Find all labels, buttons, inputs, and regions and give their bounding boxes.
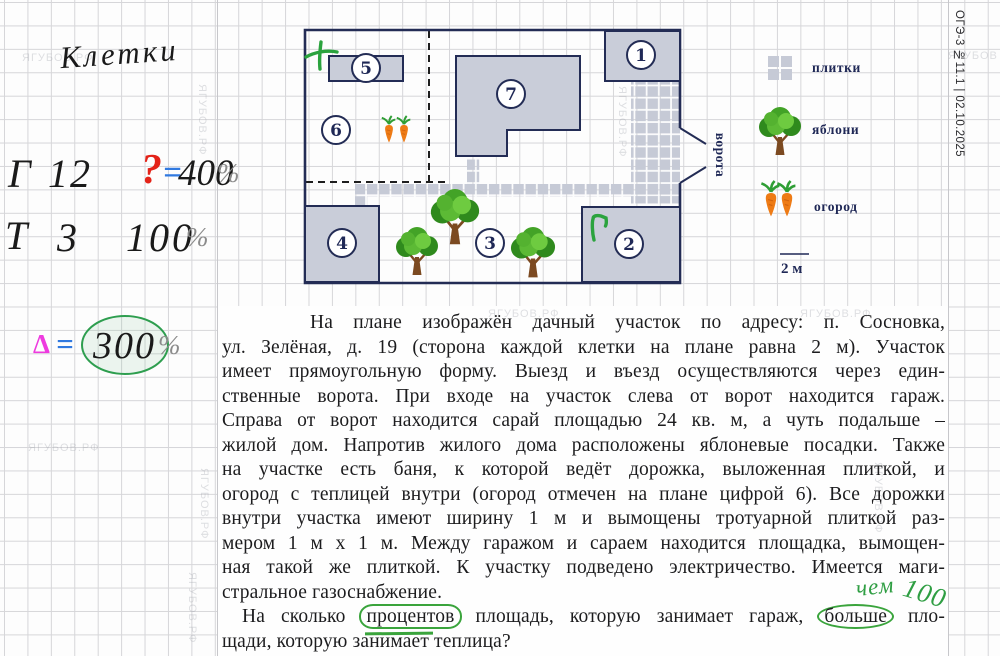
note-percent-sign: % <box>186 222 209 253</box>
region-number-6: 6 <box>330 121 342 141</box>
note-equals-sign: = <box>56 326 74 362</box>
legend-label-garden: огород <box>814 199 858 214</box>
green-circled-word: больше <box>817 604 894 629</box>
exam-side-label: ОГЭ-3 №11.1 | 02.10.2025 <box>953 10 965 157</box>
tiles-legend-icon <box>768 56 792 80</box>
legend-label-tiles: плитки <box>812 60 861 75</box>
problem-line: ная такой же плиткой. К участку подведен… <box>222 556 945 581</box>
problem-line: ственные ворота. При входе на участок сл… <box>222 385 945 410</box>
problem-line: имеет прямоугольную форму. Выезд и въезд… <box>222 360 945 385</box>
problem-line: На плане изображён дачный участок по адр… <box>222 311 945 336</box>
note-percent-sign: % <box>217 158 240 189</box>
problem-text: На плане изображён дачный участок по адр… <box>222 311 945 654</box>
note-greenhouse-letter: Т <box>5 212 27 259</box>
region-number-2: 2 <box>623 235 635 255</box>
apple-tree-icon <box>431 189 479 244</box>
region-number-7: 7 <box>505 85 517 105</box>
note-percent-sign: % <box>158 330 181 361</box>
region-number-1: 1 <box>635 46 647 66</box>
note-question-mark: ? <box>141 146 162 194</box>
region-number-5: 5 <box>360 59 372 79</box>
question-pre: На сколько <box>222 606 346 627</box>
problem-line: мером 1 м х 1 м. Между гаражом и сараем … <box>222 532 945 557</box>
problem-line: внутри участка имеют ширину 1 м и вымоще… <box>222 507 945 532</box>
apple-tree-icon <box>396 227 438 275</box>
legend-label-apples: яблони <box>812 122 859 137</box>
problem-line: стральное газоснабжение. <box>222 581 945 606</box>
green-hint-word: чем <box>855 572 896 602</box>
question-mid: площадь, которую занимает гараж, <box>475 606 803 627</box>
scale-label: 2 м <box>781 261 802 277</box>
problem-line: Справа от ворот находится сарай площадью… <box>222 409 945 434</box>
note-answer-value: 300 <box>93 324 156 368</box>
problem-line: щади, которую занимает теплица? <box>222 630 945 655</box>
problem-line: огород с теплицей внутри (огород отмечен… <box>222 483 945 508</box>
note-garage-cells: 12 <box>48 150 92 197</box>
garden-dashed-boundary <box>305 31 445 182</box>
paved-area <box>631 82 680 204</box>
tiled-path-stub-house <box>467 158 479 184</box>
worksheet-page: ЯГУБОВ.РФ ЯГУБОВ.РФ ЯГУБОВ.РФ ЯГУБОВ.РФ … <box>0 0 1000 656</box>
carrot-legend-icon <box>761 181 779 216</box>
carrot-icon <box>382 116 396 143</box>
apple-tree-icon <box>511 227 555 277</box>
question-line: На сколько процентов площадь, которую за… <box>222 605 945 630</box>
plan-legend: плитки яблони огород 2 м <box>759 56 861 277</box>
problem-line: жилой дом. Напротив жилого дома располож… <box>222 434 945 459</box>
region-number-4: 4 <box>336 234 348 254</box>
problem-line: ул. Зелёная, д. 19 (сторона каждой клетк… <box>222 336 945 361</box>
note-delta-symbol: Δ <box>33 329 50 360</box>
note-greenhouse-cells: 3 <box>57 214 77 261</box>
note-greenhouse-percent-value: 100 <box>126 214 195 261</box>
gate-label: ворота <box>713 133 728 178</box>
problem-line: на участке есть баня, к которой ведёт до… <box>222 458 945 483</box>
gate-marks <box>680 128 706 183</box>
region-number-3: 3 <box>484 234 496 254</box>
note-garage-letter: Г <box>8 150 31 197</box>
apple-tree-legend-icon <box>759 107 801 155</box>
carrot-legend-icon <box>777 181 795 216</box>
carrot-icon <box>397 116 411 143</box>
green-circled-word: процентов <box>359 604 461 629</box>
